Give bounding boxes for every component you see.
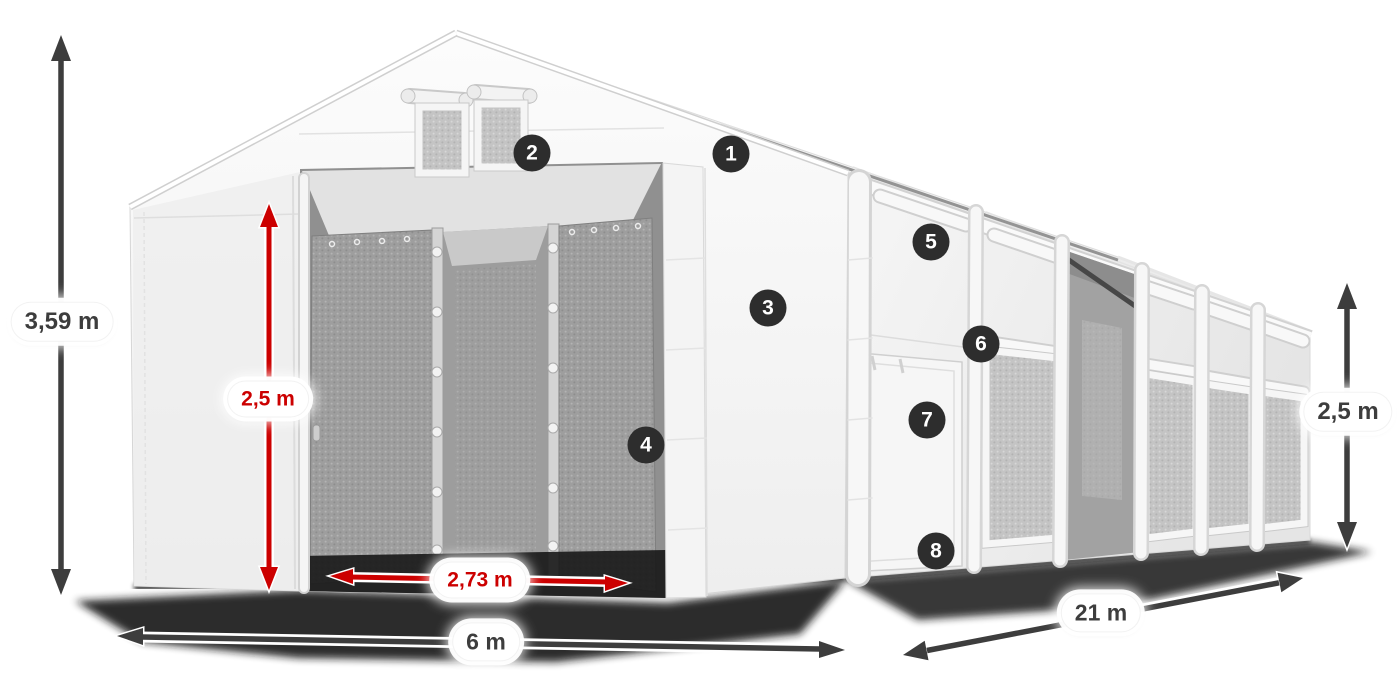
feature-marker-5: 5: [913, 224, 950, 261]
interior-mesh-panel-left: [310, 230, 432, 584]
feature-marker-2: 2: [514, 135, 551, 172]
interior-pole-left: [432, 228, 443, 580]
interior-inner-door: [455, 264, 536, 566]
door-handle: [313, 425, 320, 441]
feature-marker-4: 4: [628, 427, 665, 464]
feature-marker-7: 7: [909, 402, 946, 439]
corner-pillar: [858, 182, 859, 574]
entrance-opening: [300, 162, 666, 598]
feature-marker-6: 6: [963, 326, 1000, 363]
tent-illustration: [0, 0, 1400, 700]
open-side-section: [1064, 250, 1140, 560]
dimension-label-gable-width: 6 m: [452, 622, 520, 661]
feature-marker-3: 3: [750, 290, 787, 327]
feature-marker-8: 8: [918, 533, 955, 570]
interior-pole-right: [548, 224, 559, 576]
dimension-label-entrance-width: 2,73 m: [433, 561, 526, 598]
dimension-label-entrance-height: 2,5 m: [227, 380, 309, 417]
dimension-label-side-length: 21 m: [1061, 593, 1141, 632]
dimension-label-total-height: 3,59 m: [11, 302, 114, 342]
dimension-label-side-height: 2,5 m: [1303, 392, 1392, 432]
tent-dimension-diagram: 3,59 m 2,5 m 2,73 m 6 m 21 m 2,5 m 1 2 3…: [0, 0, 1400, 700]
interior-mesh-panel-right: [559, 218, 656, 592]
door-pillar-right: [663, 163, 706, 598]
feature-marker-1: 1: [713, 136, 750, 173]
